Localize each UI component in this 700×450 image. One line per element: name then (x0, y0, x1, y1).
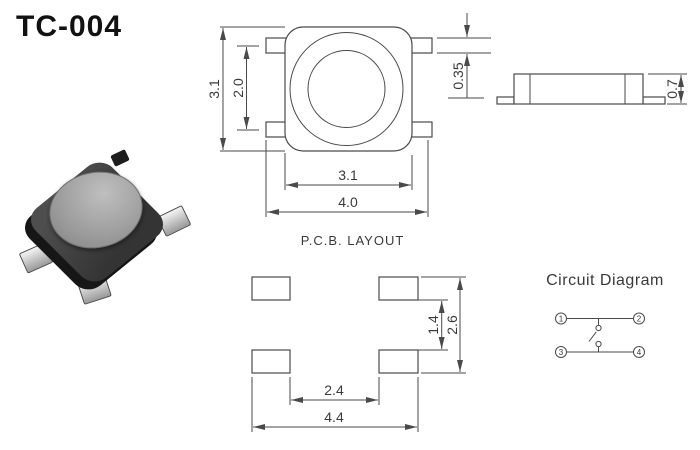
pcb-layout-drawing: 1.4 2.6 2.4 4.4 (230, 260, 475, 440)
pcb-pads (252, 277, 418, 373)
dim-label: 0.35 (450, 62, 466, 89)
terminal-3-label: 3 (559, 348, 564, 357)
top-view-drawing: 3.1 2.0 0.35 3.1 4.0 (190, 5, 500, 230)
pad-top-right (379, 277, 418, 300)
side-body-outline (514, 74, 643, 104)
product-photo (12, 148, 192, 313)
dim-lead-thickness: 0.35 (437, 13, 491, 98)
side-lead-left (497, 97, 514, 104)
switch-lever (589, 332, 596, 342)
dim-pad-inner-horizontal: 2.4 (290, 377, 379, 405)
datasheet-page: TC-004 3.1 (0, 0, 700, 450)
dim-label: 4.0 (338, 194, 358, 210)
pad-bottom-left (252, 350, 290, 373)
circuit-diagram-title: Circuit Diagram (525, 272, 685, 290)
circuit-diagram-drawing: 1 2 3 4 (545, 300, 655, 370)
lead-top-left (266, 38, 287, 53)
dim-label: 3.1 (206, 79, 222, 99)
dim-label: 1.4 (425, 315, 441, 335)
circuit-terminals: 1 2 3 4 (556, 313, 645, 358)
dim-body-width: 3.1 (285, 153, 412, 190)
lead-top-right (411, 38, 432, 53)
pad-bottom-right (379, 350, 418, 373)
pad-top-left (252, 277, 290, 300)
dim-label: 3.1 (338, 167, 358, 183)
side-view-body (497, 74, 665, 104)
switch-nub-top (110, 149, 130, 167)
dim-label: 0.7 (664, 79, 680, 99)
circuit-wires (567, 319, 634, 353)
switch-outline (285, 27, 412, 151)
dim-label: 4.4 (324, 409, 344, 425)
side-lead-right (643, 97, 665, 104)
contact-upper (596, 325, 601, 330)
dim-label: 2.0 (230, 78, 246, 98)
dim-lead-pitch: 2.0 (230, 46, 259, 130)
terminal-2-label: 2 (637, 314, 642, 323)
dim-label: 2.4 (324, 382, 344, 398)
top-view-body (266, 27, 432, 151)
lead-bottom-left (266, 122, 287, 137)
page-title: TC-004 (16, 10, 122, 44)
contact-lower (596, 341, 601, 346)
lead-bottom-right (411, 122, 432, 137)
pcb-layout-title: P.C.B. LAYOUT (230, 233, 475, 248)
side-view-drawing: 0.7 (490, 60, 700, 115)
dim-label: 2.6 (444, 315, 460, 335)
terminal-4-label: 4 (637, 348, 642, 357)
terminal-1-label: 1 (559, 314, 564, 323)
